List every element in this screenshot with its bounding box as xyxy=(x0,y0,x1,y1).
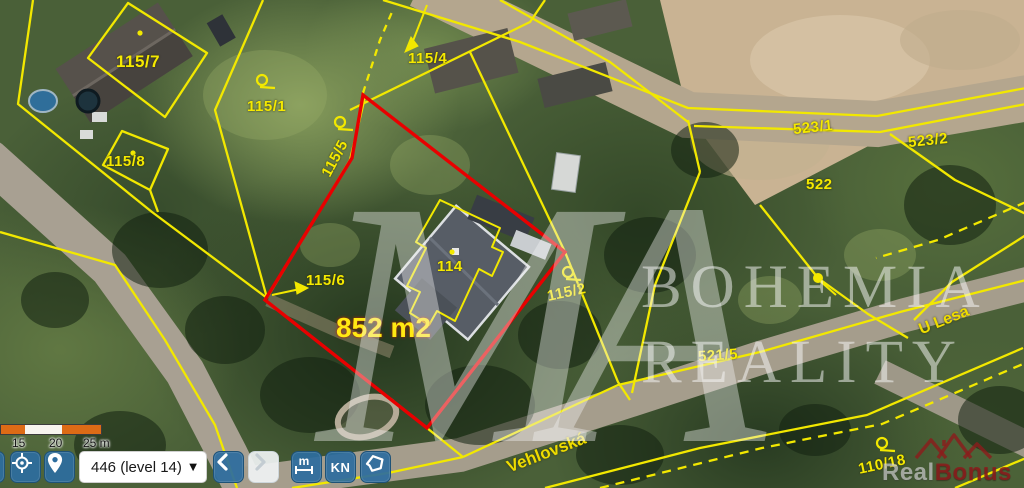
roofs-icon xyxy=(914,430,994,460)
measure-button[interactable]: m xyxy=(291,451,322,483)
kn-button[interactable]: KN xyxy=(325,451,356,483)
forward-button[interactable] xyxy=(248,451,279,483)
cadastre-layer xyxy=(0,0,1024,488)
marker-button[interactable] xyxy=(44,451,75,483)
chevron-down-icon: ▼ xyxy=(189,462,197,473)
measure-icon: m xyxy=(292,452,316,476)
brand-logo-text: RealBonus xyxy=(882,459,1012,487)
parcel-label: 114 xyxy=(437,258,463,275)
parcel-label: 115/6 xyxy=(306,272,345,289)
polygon-icon xyxy=(361,452,385,474)
partial-button[interactable] xyxy=(0,451,5,483)
leader-arrows xyxy=(272,5,836,295)
chevron-left-icon xyxy=(214,452,234,472)
parcel-label: 115/1 xyxy=(247,98,286,115)
scale-bar xyxy=(0,424,102,435)
svg-text:m: m xyxy=(299,454,310,468)
back-button[interactable] xyxy=(213,451,244,483)
parcel-label: 115/8 xyxy=(106,153,145,170)
crosshair-icon xyxy=(11,452,33,474)
highlighted-parcel-outline[interactable] xyxy=(265,95,565,428)
draw-area-button[interactable] xyxy=(360,451,391,483)
chevron-right-icon xyxy=(249,452,269,472)
parcel-label: 115/4 xyxy=(408,50,447,67)
locate-button[interactable] xyxy=(10,451,41,483)
parcel-boundary-lines xyxy=(0,0,1024,488)
parcel-label: 115/7 xyxy=(116,52,160,72)
brand-logo: RealBonus xyxy=(876,430,1024,488)
map-application: 115/7 115/1 115/8 115/4 115/5 115/6 114 … xyxy=(0,0,1024,488)
level-select-dropdown[interactable]: 446 (level 14) ▼ xyxy=(79,451,207,483)
parcel-area-label: 852 m2 xyxy=(336,312,431,344)
parcel-label: 522 xyxy=(806,176,833,193)
location-pin-icon xyxy=(45,452,65,474)
parcel-label: 521/5 xyxy=(697,346,738,366)
scale-bar-ticks: 15 20 25 m xyxy=(0,436,130,452)
level-select-value: 446 (level 14) xyxy=(80,459,182,476)
